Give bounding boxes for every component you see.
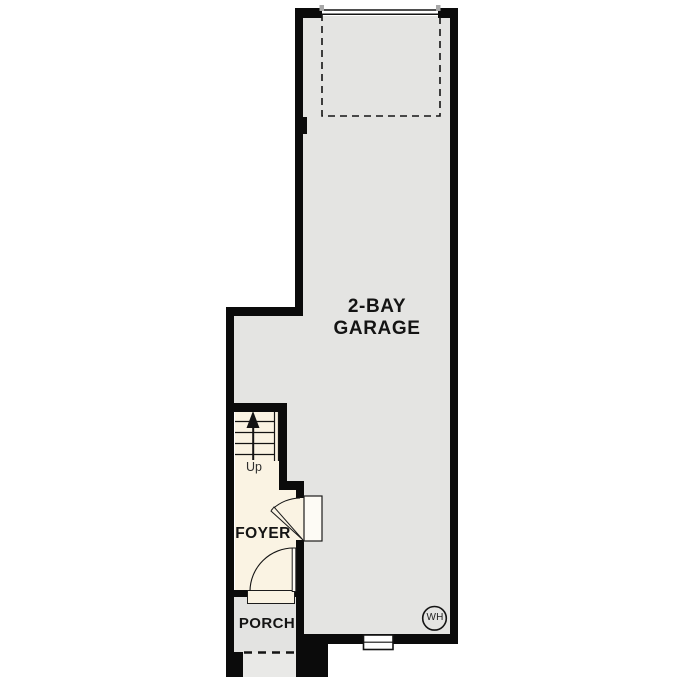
entry-door-leaf — [292, 548, 296, 592]
garage-room-label-line1: 2-BAY — [307, 296, 447, 318]
floor-plan-canvas — [0, 0, 687, 687]
water-heater-label: WH — [422, 612, 448, 623]
foyer-room-label: FOYER — [230, 525, 296, 543]
porch-step — [243, 652, 298, 677]
floor-plan: 2-BAY GARAGE FOYER PORCH Up WH — [0, 0, 687, 687]
garage-room-label: 2-BAY GARAGE — [307, 296, 447, 340]
garage-door — [322, 10, 438, 14]
stairs-up-label: Up — [240, 460, 268, 474]
porch-room-label: PORCH — [236, 615, 298, 632]
garage-room-label-line2: GARAGE — [307, 318, 447, 340]
garage-rear-window — [364, 635, 394, 650]
entry-threshold — [248, 591, 295, 604]
foyer-garage-door-jamb — [304, 496, 322, 541]
